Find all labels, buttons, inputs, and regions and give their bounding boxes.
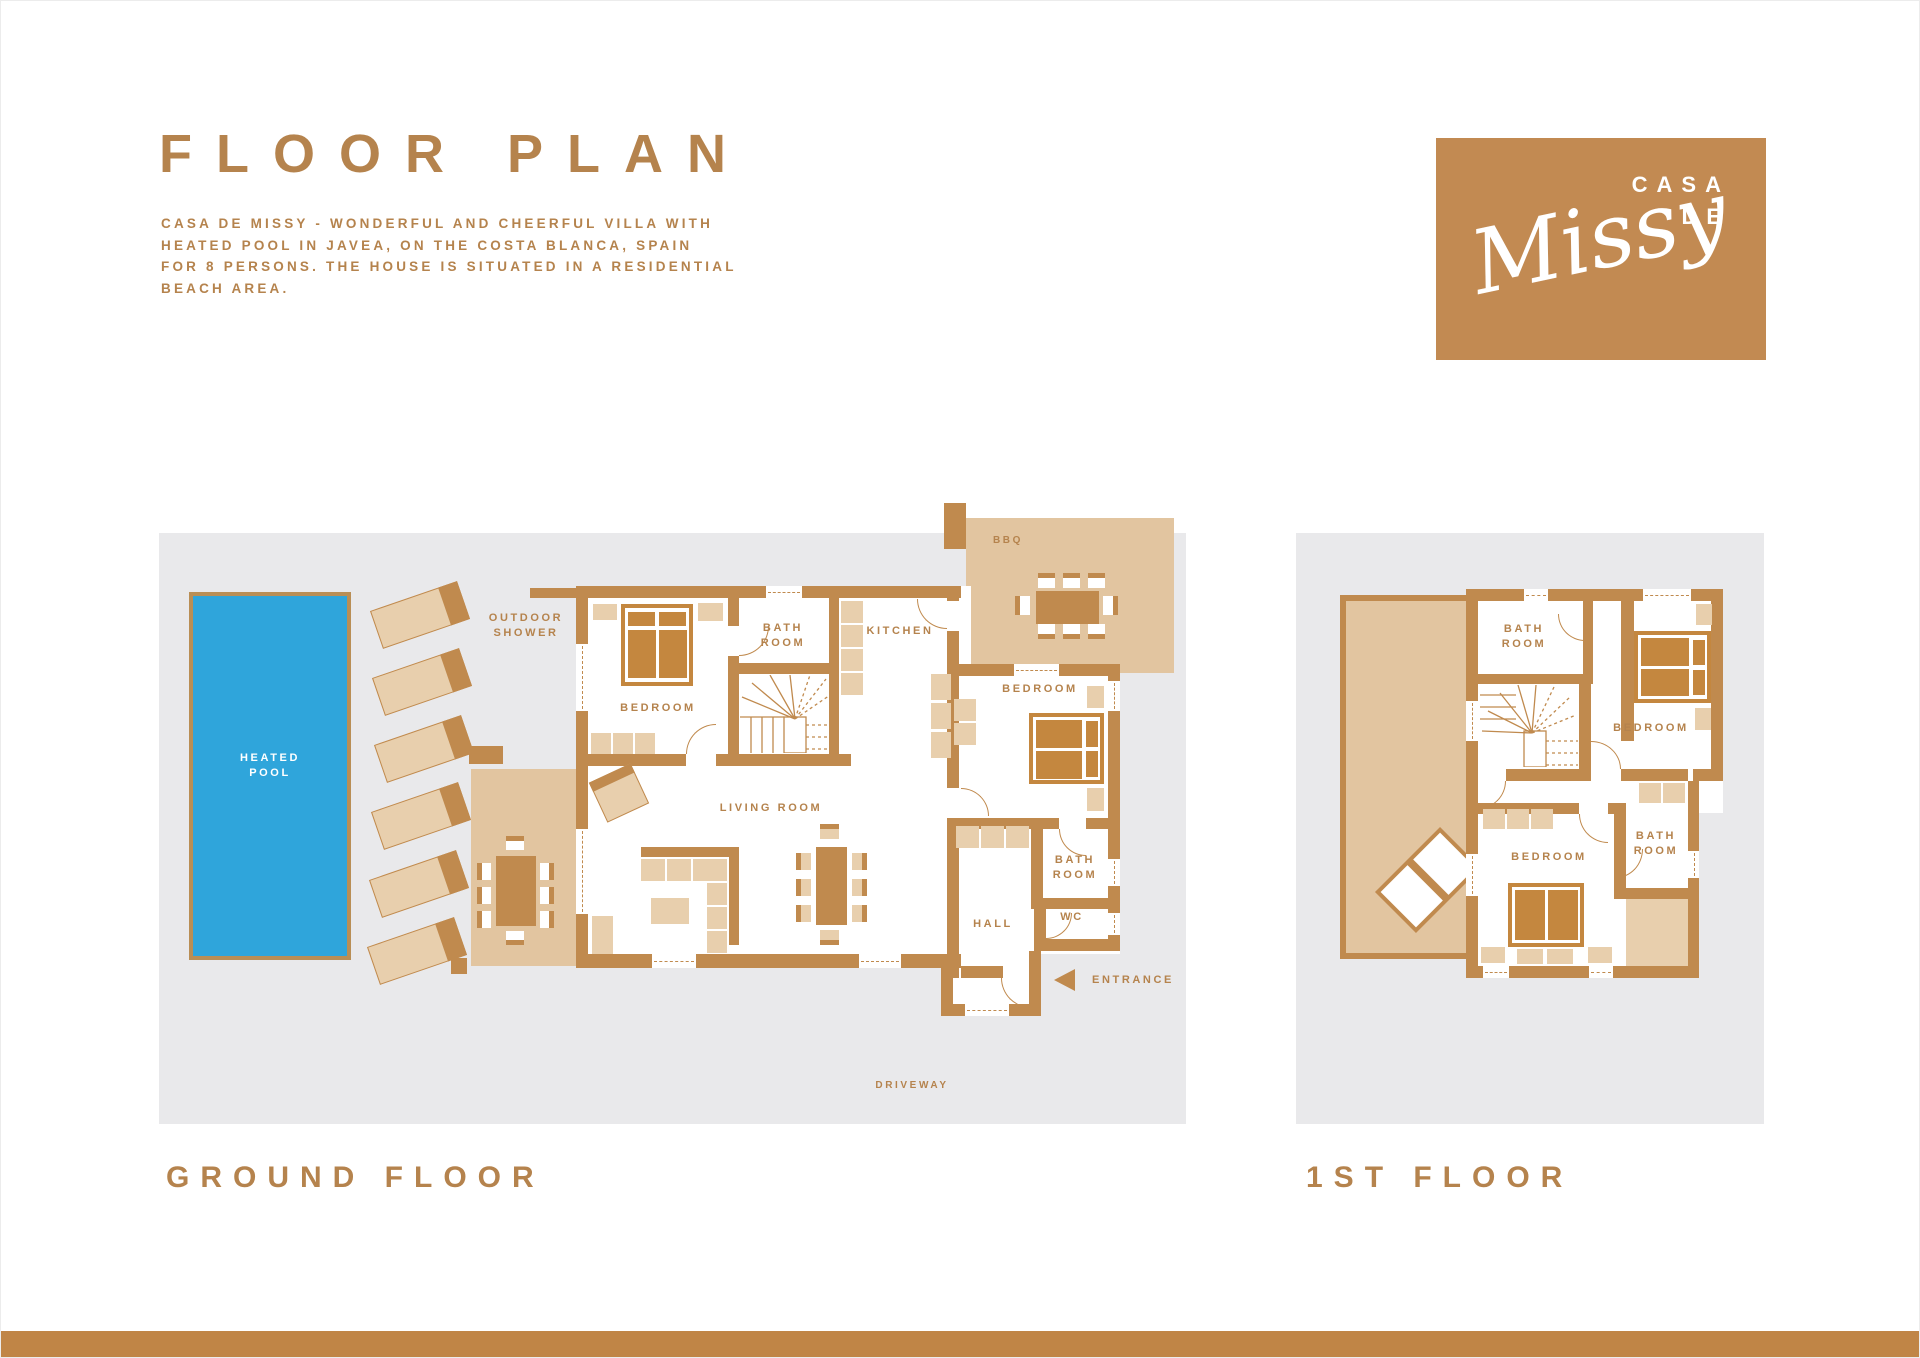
brand-logo: CASA DE Missy bbox=[1436, 138, 1766, 360]
bbq-chimney bbox=[944, 503, 966, 549]
room-label-bedroom-bottom: BEDROOM bbox=[1511, 850, 1587, 865]
wall bbox=[1506, 769, 1591, 781]
bench bbox=[981, 826, 1004, 848]
wall bbox=[588, 754, 686, 766]
cupboard bbox=[931, 674, 951, 700]
sun-lounger bbox=[369, 850, 469, 918]
wall bbox=[1693, 769, 1723, 781]
bench bbox=[613, 733, 633, 754]
stairs bbox=[740, 675, 838, 753]
wall bbox=[1688, 781, 1699, 978]
ground-floor-caption: GROUND FLOOR bbox=[166, 1161, 545, 1195]
chair bbox=[1063, 573, 1080, 588]
room-label-bathroom-bottom: BATH ROOM bbox=[1634, 829, 1679, 859]
chair bbox=[796, 853, 811, 870]
chair bbox=[820, 930, 839, 945]
room-label-bedroom-right: BEDROOM bbox=[1002, 682, 1078, 697]
sofa-seat bbox=[707, 931, 727, 953]
page-title: FLOOR PLAN bbox=[159, 123, 750, 185]
nightstand bbox=[1087, 788, 1104, 811]
kitchen-counter bbox=[841, 649, 863, 671]
cupboard bbox=[931, 732, 951, 758]
room-label-living-room: LIVING ROOM bbox=[720, 801, 823, 816]
nightstand bbox=[1087, 686, 1104, 708]
double-bed bbox=[621, 604, 693, 686]
chair bbox=[820, 824, 839, 839]
chair bbox=[540, 887, 554, 904]
first-floor-plan: BATH ROOM BEDROOM BEDROOM BATH ROOM bbox=[1296, 533, 1764, 1124]
bench bbox=[954, 723, 976, 745]
bench bbox=[1507, 809, 1529, 829]
window bbox=[1524, 589, 1548, 601]
wall bbox=[1034, 939, 1119, 951]
double-bed bbox=[1634, 631, 1711, 703]
bench bbox=[591, 733, 611, 754]
footer-bar bbox=[1, 1331, 1920, 1358]
window bbox=[1466, 854, 1478, 896]
dining-table bbox=[816, 847, 847, 925]
window bbox=[1466, 701, 1478, 741]
wall bbox=[739, 663, 839, 674]
coffee-table bbox=[651, 898, 689, 924]
chair bbox=[540, 911, 554, 928]
side-table bbox=[592, 916, 613, 954]
chair bbox=[540, 863, 554, 880]
kitchen-counter bbox=[841, 601, 863, 623]
chair bbox=[852, 879, 867, 896]
chair bbox=[796, 905, 811, 922]
kitchen-counter bbox=[841, 625, 863, 647]
wall bbox=[1086, 818, 1119, 829]
bench bbox=[635, 733, 655, 754]
sun-lounger bbox=[371, 782, 471, 850]
nightstand bbox=[593, 604, 617, 620]
wall bbox=[1621, 601, 1634, 741]
room-label-bedroom-top: BEDROOM bbox=[1613, 721, 1689, 736]
chair bbox=[1088, 573, 1105, 588]
wall bbox=[1466, 589, 1478, 978]
chair bbox=[1103, 596, 1118, 615]
bed-pillow bbox=[1547, 949, 1573, 964]
room-label-bathroom-top: BATH ROOM bbox=[761, 621, 806, 651]
window bbox=[766, 586, 802, 598]
room-label-bbq: BBQ bbox=[993, 533, 1023, 548]
double-bed bbox=[1029, 713, 1104, 784]
window bbox=[859, 954, 901, 968]
wall bbox=[1579, 684, 1591, 769]
bench bbox=[1006, 826, 1029, 848]
wall bbox=[1031, 829, 1043, 898]
nightstand bbox=[1481, 947, 1505, 963]
sun-lounger bbox=[374, 715, 474, 783]
logo-script-text: Missy bbox=[1462, 160, 1736, 314]
chair bbox=[506, 836, 524, 850]
window bbox=[1014, 664, 1059, 676]
chair bbox=[477, 863, 491, 880]
entrance-arrow-icon bbox=[1054, 969, 1075, 991]
bench bbox=[1483, 809, 1505, 829]
room-label-entrance: ENTRANCE bbox=[1092, 973, 1174, 988]
bench bbox=[1639, 783, 1661, 803]
sofa-seat bbox=[707, 907, 727, 929]
window bbox=[1108, 859, 1120, 886]
floor-plan-poster: FLOOR PLAN CASA DE MISSY - WONDERFUL AND… bbox=[0, 0, 1920, 1358]
room-label-outdoor-shower: OUTDOOR SHOWER bbox=[489, 611, 563, 641]
wall bbox=[1034, 909, 1046, 939]
nightstand bbox=[698, 603, 723, 621]
window bbox=[1589, 966, 1613, 978]
chair bbox=[852, 853, 867, 870]
bbq-dining-table bbox=[1036, 591, 1099, 624]
wall bbox=[1711, 589, 1723, 781]
wall bbox=[1621, 769, 1688, 781]
wall bbox=[947, 631, 959, 664]
storage-room-floor bbox=[1626, 899, 1688, 966]
window bbox=[576, 829, 588, 914]
chair bbox=[506, 931, 524, 945]
window bbox=[1688, 851, 1699, 878]
window bbox=[652, 954, 696, 968]
chair bbox=[1015, 596, 1030, 615]
sofa-back bbox=[729, 847, 739, 945]
sofa-seat bbox=[667, 859, 691, 881]
wall bbox=[961, 966, 1003, 978]
window bbox=[1483, 966, 1509, 978]
wall bbox=[716, 754, 851, 766]
wall bbox=[1614, 888, 1699, 899]
window bbox=[965, 1004, 1009, 1016]
room-label-bedroom-left: BEDROOM bbox=[620, 701, 696, 716]
window bbox=[1643, 589, 1691, 601]
room-label-hall: HALL bbox=[973, 917, 1013, 932]
wall bbox=[728, 586, 739, 626]
sofa-seat bbox=[707, 883, 727, 905]
sofa-seat bbox=[693, 859, 727, 881]
room-label-driveway: DRIVEWAY bbox=[875, 1078, 948, 1093]
bench bbox=[1531, 809, 1553, 829]
sofa-seat bbox=[641, 859, 665, 881]
sun-lounger bbox=[372, 648, 472, 716]
first-floor-caption: 1ST FLOOR bbox=[1306, 1161, 1573, 1195]
nightstand bbox=[1695, 708, 1711, 730]
wall bbox=[728, 656, 739, 754]
nightstand bbox=[1696, 604, 1712, 625]
wall bbox=[1478, 674, 1593, 684]
sofa-back bbox=[641, 847, 737, 857]
room-label-bathroom-right: BATH ROOM bbox=[1053, 853, 1098, 883]
bench bbox=[954, 699, 976, 721]
double-bed bbox=[1508, 883, 1584, 947]
chair bbox=[1088, 624, 1105, 639]
chair bbox=[1063, 624, 1080, 639]
chair bbox=[796, 879, 811, 896]
sun-lounger bbox=[370, 581, 470, 649]
outdoor-dining-table bbox=[496, 856, 536, 926]
room-label-heated-pool: HEATED POOL bbox=[240, 751, 300, 781]
wall bbox=[576, 954, 961, 968]
wall bbox=[1031, 898, 1119, 909]
bench bbox=[956, 826, 979, 848]
cupboard bbox=[931, 703, 951, 729]
chair bbox=[477, 911, 491, 928]
room-label-wc: WC bbox=[1060, 910, 1084, 925]
pergola-pillar bbox=[469, 746, 503, 764]
nightstand bbox=[1588, 947, 1612, 963]
wall bbox=[947, 586, 959, 601]
kitchen-counter bbox=[841, 673, 863, 695]
chair bbox=[1038, 573, 1055, 588]
sun-lounger bbox=[367, 917, 467, 985]
room-label-kitchen: KITCHEN bbox=[866, 624, 933, 639]
bed-pillow bbox=[1517, 949, 1543, 964]
page-description: CASA DE MISSY - WONDERFUL AND CHEERFUL V… bbox=[161, 213, 737, 299]
pergola-pillar bbox=[451, 958, 467, 974]
window bbox=[1108, 681, 1120, 711]
stairs bbox=[1480, 685, 1578, 767]
chair bbox=[477, 887, 491, 904]
room-label-bathroom-top: BATH ROOM bbox=[1502, 622, 1547, 652]
window bbox=[1108, 913, 1120, 935]
bench bbox=[1663, 783, 1685, 803]
chair bbox=[1038, 624, 1055, 639]
chair bbox=[852, 905, 867, 922]
ground-floor-plan: HEATED POOL BBQ bbox=[159, 533, 1186, 1124]
window bbox=[576, 644, 588, 711]
